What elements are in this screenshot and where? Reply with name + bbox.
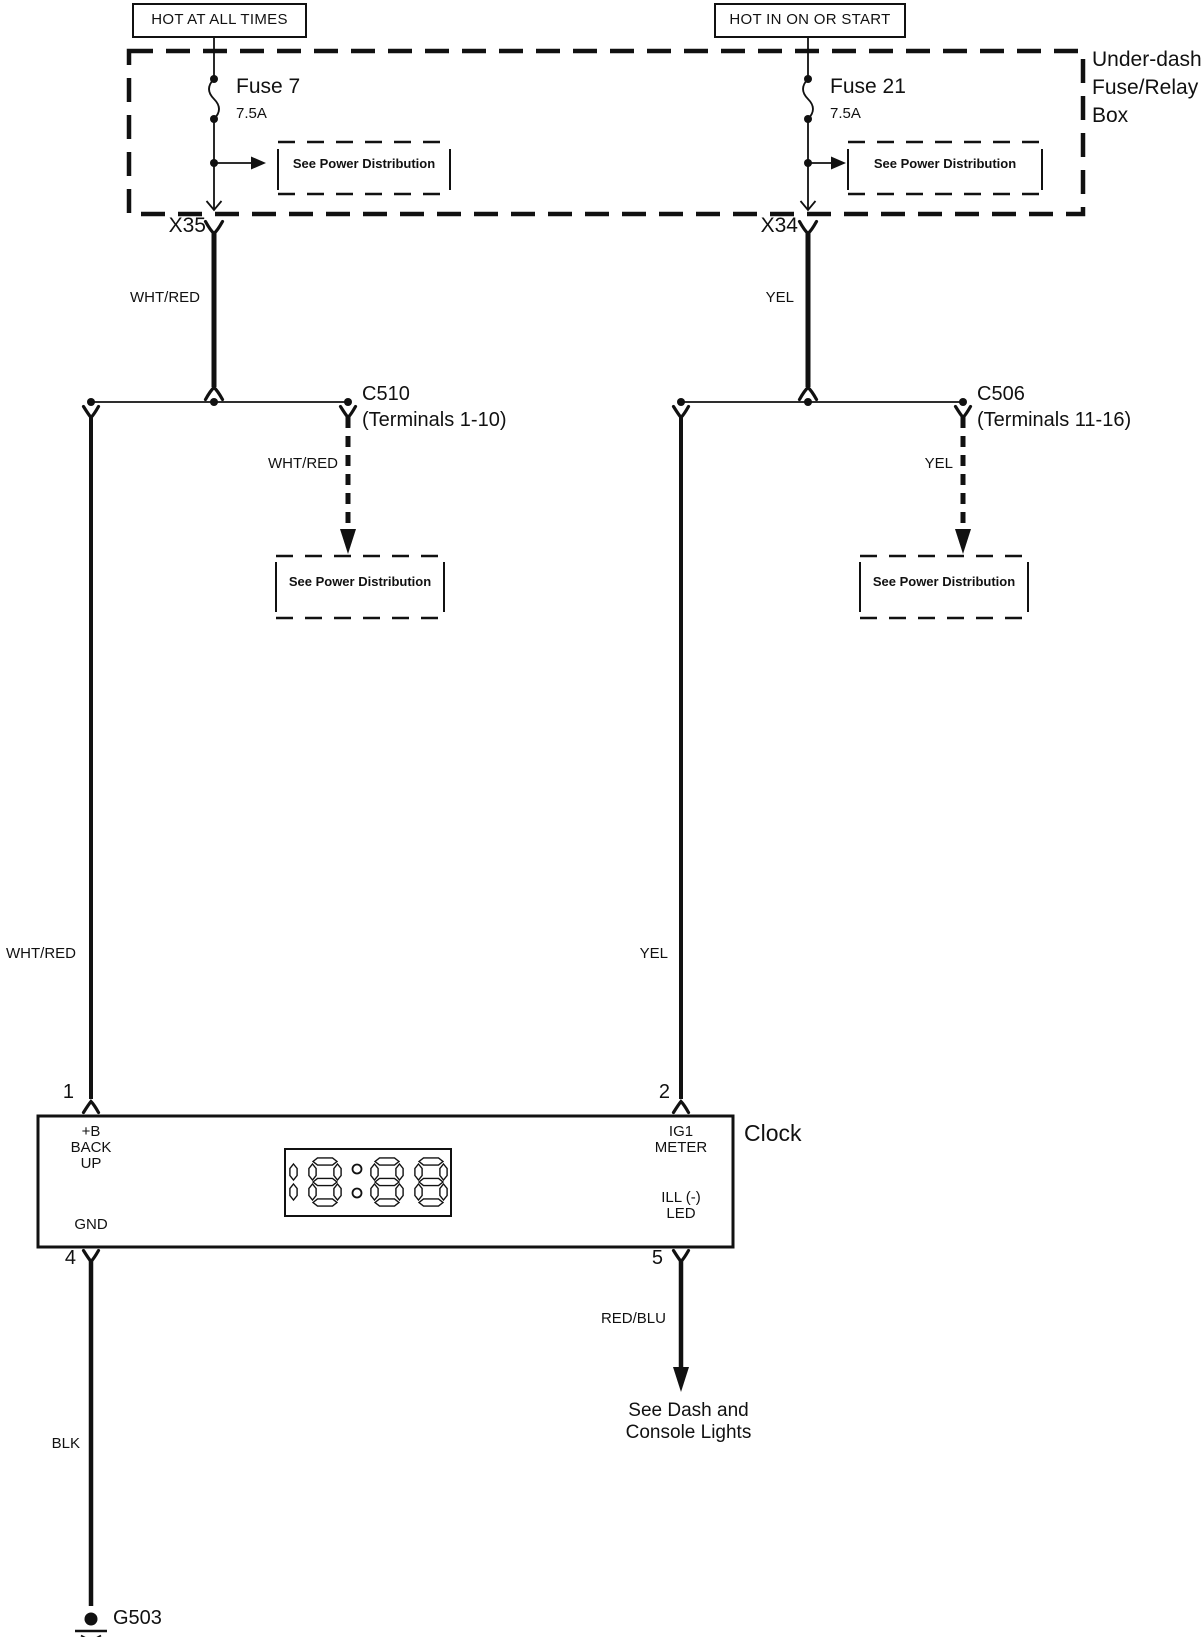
fuse7-name: Fuse 7 <box>236 75 300 99</box>
down-arrow-icon <box>673 1367 689 1392</box>
wire-label-blk: BLK <box>30 1435 80 1452</box>
ground-symbol-icon <box>75 1613 107 1637</box>
connector-c510-branch <box>340 407 356 555</box>
clock-terminal-5-pin-label: ILL (-) LED <box>638 1190 724 1222</box>
down-arrow-icon <box>955 529 971 554</box>
connector-fork-icon <box>674 407 689 418</box>
fuse7-rating: 7.5A <box>236 105 267 122</box>
junction-left <box>87 398 352 406</box>
fuse7-symbol <box>209 79 219 119</box>
ref-power-distribution-mid-left: See Power Distribution <box>278 574 442 589</box>
diagram-canvas <box>0 0 1202 1637</box>
fuse21-branch <box>801 38 847 210</box>
connector-fork-icon <box>84 1251 99 1262</box>
fuse21-name: Fuse 21 <box>830 75 906 99</box>
connector-x34-wire <box>800 222 817 400</box>
ref-arrow-icon <box>831 157 846 170</box>
connector-fork-icon <box>674 1102 689 1113</box>
connector-fork-icon <box>84 407 99 418</box>
wire-label-wht-red-upper: WHT/RED <box>108 289 200 306</box>
connector-c510-label: C510 (Terminals 1-10) <box>362 381 506 433</box>
clock-terminal-5-number: 5 <box>639 1247 663 1270</box>
wire-label-wht-red-mid: WHT/RED <box>248 455 338 472</box>
ref-power-distribution-top-right: See Power Distribution <box>850 156 1040 171</box>
wire-label-yel-upper: YEL <box>710 289 794 306</box>
clock-component-label: Clock <box>744 1120 802 1147</box>
clock-terminal-1-number: 1 <box>50 1081 74 1104</box>
wire-yel-long <box>674 407 689 1113</box>
wire-label-yel-mid: YEL <box>878 455 953 472</box>
wire-wht-red-long <box>84 407 99 1113</box>
fuse7-branch <box>207 38 267 210</box>
clock-terminal-4-pin-label: GND <box>56 1216 126 1233</box>
down-arrow-icon <box>340 529 356 554</box>
wire-label-yel-long: YEL <box>590 945 668 962</box>
connector-c506-branch <box>955 407 971 555</box>
connector-x35-wire <box>206 222 223 400</box>
fuse-relay-box-label: Under-dash Fuse/Relay Box <box>1092 46 1202 130</box>
connector-fork-icon <box>206 388 223 400</box>
clock-terminal-4-number: 4 <box>52 1247 76 1270</box>
ground-g503-label: G503 <box>113 1607 162 1630</box>
hot-at-all-times-box: HOT AT ALL TIMES <box>132 3 307 38</box>
clock-terminal-2-number: 2 <box>646 1081 670 1104</box>
ref-dash-console-lights: See Dash and Console Lights <box>601 1400 776 1444</box>
connector-x35-label: X35 <box>140 214 206 238</box>
wire-label-wht-red-long: WHT/RED <box>0 945 76 962</box>
hot-in-on-or-start-box: HOT IN ON OR START <box>714 3 906 38</box>
clock-terminal-1-pin-label: +B BACK UP <box>56 1124 126 1172</box>
connector-c506-label: C506 (Terminals 11-16) <box>977 381 1131 433</box>
connector-fork-icon <box>956 407 971 418</box>
junction-right <box>677 398 967 406</box>
wire-red-blu <box>673 1251 689 1393</box>
connector-fork-icon <box>800 388 817 400</box>
wire-blk <box>84 1251 99 1607</box>
connector-fork-icon <box>674 1251 689 1262</box>
ref-arrow-icon <box>251 157 266 170</box>
fuse21-rating: 7.5A <box>830 105 861 122</box>
connector-fork-icon <box>84 1102 99 1113</box>
clock-terminal-2-pin-label: IG1 METER <box>638 1124 724 1156</box>
wiring-diagram-page: { "titles": { "left": "HOT AT ALL TIMES"… <box>0 0 1202 1637</box>
ref-power-distribution-mid-right: See Power Distribution <box>862 574 1026 589</box>
ref-power-distribution-top-left: See Power Distribution <box>280 156 448 171</box>
fuse21-symbol <box>803 79 813 119</box>
connector-fork-icon <box>341 407 356 418</box>
wire-label-red-blu: RED/BLU <box>580 1310 666 1327</box>
clock-seven-segment-display <box>290 1158 447 1206</box>
connector-fork-icon <box>800 222 817 234</box>
connector-fork-icon <box>206 222 223 234</box>
connector-x34-label: X34 <box>732 214 798 238</box>
